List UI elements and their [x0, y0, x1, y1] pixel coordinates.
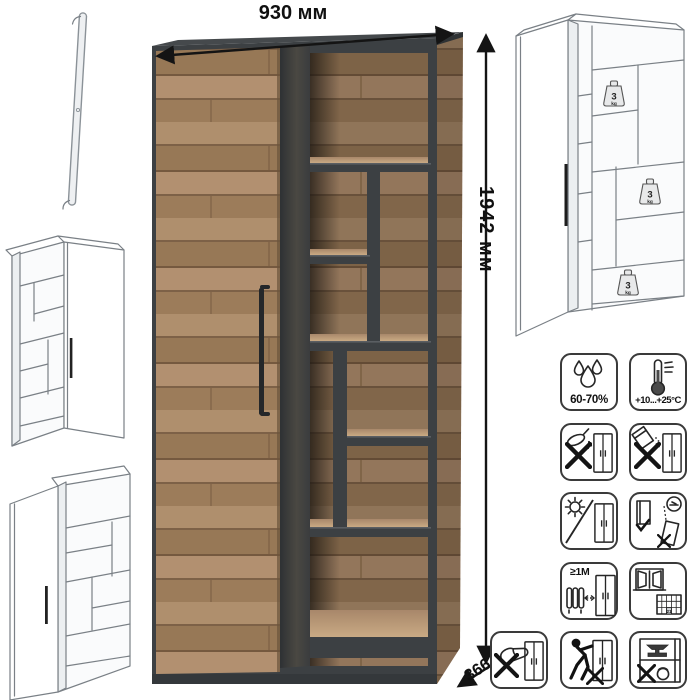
load-unit: kg: [611, 101, 617, 107]
handle-drawing: [28, 4, 112, 222]
ventilate-room-icon: 21: [629, 562, 687, 620]
wireframe-handle: [45, 586, 48, 624]
humidity-drops-icon: 60-70%: [560, 353, 618, 411]
width-dimension-label: 930 мм: [230, 2, 356, 25]
load-unit: kg: [625, 290, 631, 296]
height-dimension-label: 1942 мм: [474, 186, 497, 273]
door-handle: [259, 288, 264, 415]
temperature-label: +10...+25°C: [631, 395, 685, 406]
cabinet-photo: [150, 26, 466, 690]
cabinet-door: [156, 47, 280, 674]
cabinet-side-panel: [437, 32, 463, 684]
no-push-drag-icon: [560, 631, 618, 689]
no-liquid-spill-icon: [560, 423, 618, 481]
load-unit: kg: [647, 199, 653, 205]
heater-distance-label: ≥1М: [570, 566, 616, 578]
wireframe-open-cabinet: [0, 458, 145, 700]
product-sheet: { "dimensions": { "width": "930 мм", "he…: [0, 0, 694, 700]
anchor-to-wall-icon: [629, 492, 687, 550]
wireframe-handle: [70, 338, 73, 378]
no-direct-sunlight-icon: [560, 492, 618, 550]
thermometer-icon: +10...+25°C: [629, 353, 687, 411]
calendar-day: 21: [666, 609, 672, 614]
cabinet-partition: [280, 46, 310, 668]
cabinet-open-shelves: [310, 44, 437, 666]
humidity-label: 60-70%: [562, 394, 616, 406]
wireframe-closed-cabinet: [0, 226, 132, 460]
no-overload-icon: [629, 631, 687, 689]
heater-distance-icon: ≥1М: [560, 562, 618, 620]
no-abrasive-powder-icon: [629, 423, 687, 481]
wireframe-load-diagram: 3 kg 3 kg 3 kg: [508, 4, 694, 342]
wireframe-handle: [565, 164, 568, 226]
no-shoe-impact-icon: [490, 631, 548, 689]
